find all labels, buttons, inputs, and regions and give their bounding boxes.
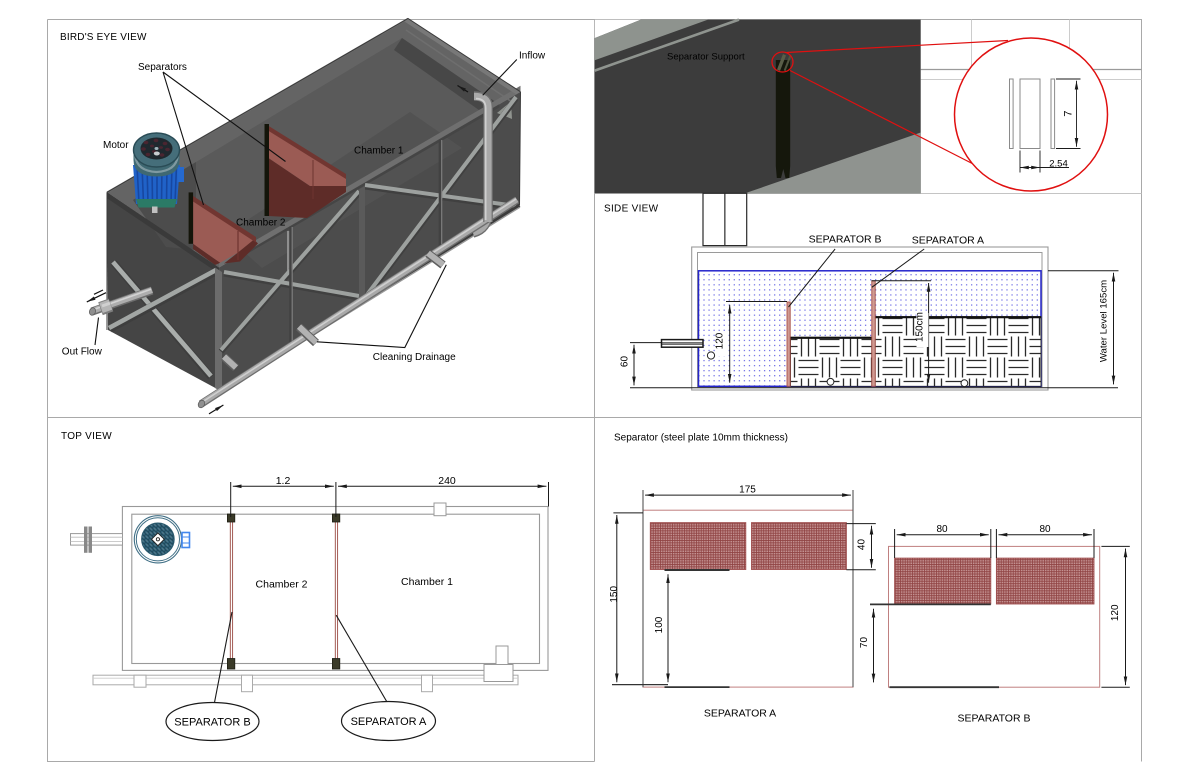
svg-text:Separators: Separators [138, 62, 187, 73]
svg-text:TOP VIEW: TOP VIEW [61, 431, 112, 442]
svg-text:40: 40 [857, 539, 868, 551]
svg-text:175: 175 [739, 485, 756, 496]
svg-text:Cleaning Drainage: Cleaning Drainage [373, 352, 456, 363]
svg-text:240: 240 [438, 475, 456, 487]
svg-text:Chamber 1: Chamber 1 [401, 576, 453, 588]
svg-text:SEPARATOR A: SEPARATOR A [704, 708, 776, 720]
svg-text:SEPARATOR A: SEPARATOR A [912, 234, 984, 246]
svg-text:Chamber 2: Chamber 2 [256, 579, 308, 591]
svg-text:Chamber 1: Chamber 1 [354, 146, 404, 157]
svg-text:150cm: 150cm [915, 312, 926, 342]
svg-text:Water Level 165cm: Water Level 165cm [1099, 280, 1110, 362]
svg-text:SIDE VIEW: SIDE VIEW [604, 204, 659, 215]
svg-text:SEPARATOR A: SEPARATOR A [351, 716, 427, 728]
svg-text:80: 80 [936, 524, 948, 535]
svg-text:Inflow: Inflow [519, 51, 546, 62]
svg-text:80: 80 [1039, 524, 1051, 535]
svg-text:120: 120 [715, 332, 726, 349]
svg-text:Separator Support: Separator Support [667, 52, 745, 63]
svg-text:Motor: Motor [103, 140, 129, 151]
svg-text:100: 100 [654, 616, 665, 633]
svg-text:7: 7 [1063, 110, 1075, 116]
svg-text:2.54: 2.54 [1049, 159, 1068, 170]
svg-text:1.2: 1.2 [276, 475, 291, 487]
svg-text:Out Flow: Out Flow [62, 347, 103, 358]
svg-text:BIRD'S EYE VIEW: BIRD'S EYE VIEW [60, 32, 147, 43]
svg-text:70: 70 [859, 637, 870, 649]
svg-text:SEPARATOR B: SEPARATOR B [174, 717, 250, 729]
svg-text:SEPARATOR B: SEPARATOR B [958, 713, 1031, 725]
svg-text:SEPARATOR B: SEPARATOR B [809, 234, 882, 246]
svg-text:60: 60 [620, 356, 631, 368]
svg-text:Separator (steel plate 10mm th: Separator (steel plate 10mm thickness) [614, 433, 788, 444]
svg-text:Chamber 2: Chamber 2 [236, 218, 286, 229]
svg-text:120: 120 [1110, 604, 1121, 621]
svg-text:150: 150 [609, 586, 620, 603]
